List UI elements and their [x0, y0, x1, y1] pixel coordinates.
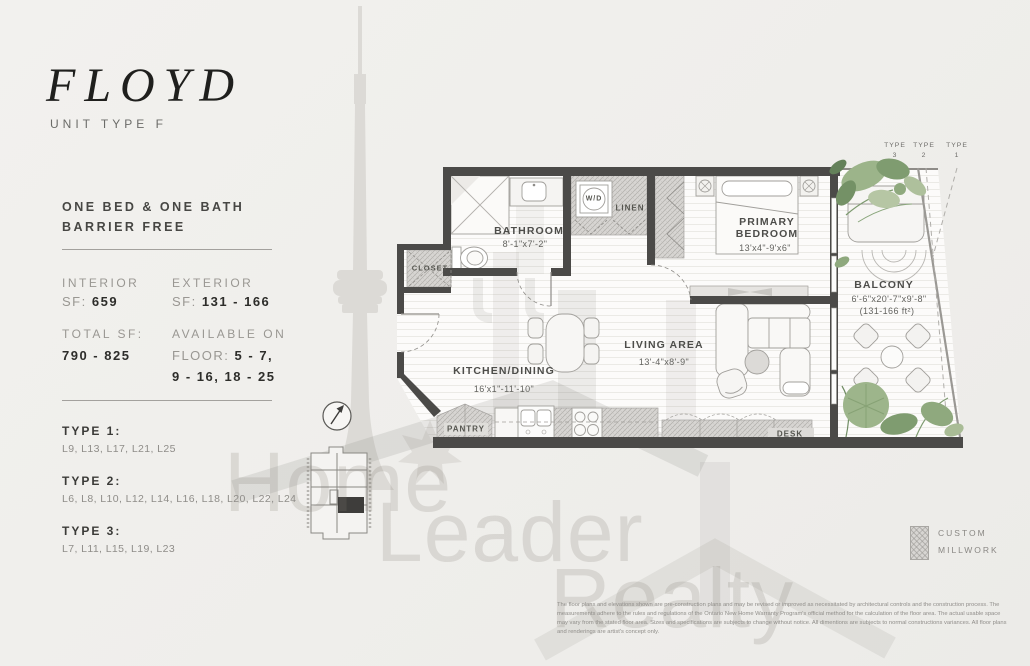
divider — [62, 400, 272, 401]
type-1-levels: L9, L13, L17, L21, L25 — [62, 443, 176, 455]
type-marker-word: TYPE — [946, 141, 968, 151]
type-2-levels: L6, L8, L10, L12, L14, L16, L18, L20, L2… — [62, 493, 296, 505]
total-sf-value: 790 - 825 — [62, 348, 130, 363]
type-marker-word: TYPE — [913, 141, 935, 151]
exterior-label: EXTERIOR — [172, 276, 253, 290]
primary-bedroom-label-1: PRIMARY — [739, 216, 795, 228]
washer-dryer-label: W/D — [586, 196, 603, 203]
disclaimer-text: The floor plans and elevations shown are… — [557, 601, 1009, 637]
type-marker-3: TYPE 3 — [884, 141, 906, 161]
balcony-area: (131-166 ft²) — [860, 306, 915, 316]
interior-value: SF: 659 — [62, 294, 118, 309]
type-marker-1: TYPE 1 — [946, 141, 968, 161]
unit-title: FLOYD — [46, 58, 243, 113]
sf-prefix: SF: — [172, 294, 197, 309]
feature-line-2: BARRIER FREE — [62, 220, 186, 234]
closet-label: CLOSET — [412, 264, 448, 273]
exterior-sf: 131 - 166 — [202, 294, 270, 309]
custom-millwork-swatch — [910, 526, 929, 560]
living-area-label: LIVING AREA — [624, 339, 703, 351]
key-plan-unit-highlight — [338, 497, 364, 513]
floor-line-2: 9 - 16, 18 - 25 — [172, 369, 275, 384]
bathroom-label: BATHROOM — [494, 225, 564, 237]
legend-line-1: CUSTOM — [938, 525, 999, 542]
type-1-label: TYPE 1: — [62, 424, 121, 438]
kitchen-dims: 16'x1"-11'-10" — [474, 384, 534, 394]
total-sf-label: TOTAL SF: — [62, 327, 144, 341]
available-on-label: AVAILABLE ON — [172, 327, 286, 341]
floor-line-1: FLOOR: 5 - 7, — [172, 348, 273, 363]
type-marker-number: 3 — [884, 151, 906, 161]
balcony-label: BALCONY — [854, 279, 914, 291]
custom-millwork-legend: CUSTOM MILLWORK — [938, 525, 999, 559]
type-marker-number: 1 — [946, 151, 968, 161]
primary-bedroom-dims: 13'x4"-9'x6" — [739, 243, 791, 253]
divider — [62, 249, 272, 250]
north-arrow-icon — [323, 402, 351, 430]
unit-subtitle: UNIT TYPE F — [50, 117, 167, 131]
sf-prefix: SF: — [62, 294, 87, 309]
type-marker-word: TYPE — [884, 141, 906, 151]
balcony-dims: 6'-6"x20'-7"x9'-8" — [852, 294, 927, 304]
linen-label: LINEN — [616, 204, 645, 213]
type-marker-number: 2 — [913, 151, 935, 161]
type-2-label: TYPE 2: — [62, 474, 121, 488]
floor-range-1: 5 - 7, — [235, 348, 274, 363]
living-area-dims: 13'-4"x8'-9" — [639, 357, 689, 367]
interior-label: INTERIOR — [62, 276, 139, 290]
legend-line-2: MILLWORK — [938, 542, 999, 559]
feature-line-1: ONE BED & ONE BATH — [62, 200, 244, 214]
primary-bedroom-label-2: BEDROOM — [736, 228, 799, 240]
exterior-value: SF: 131 - 166 — [172, 294, 270, 309]
type-3-label: TYPE 3: — [62, 524, 121, 538]
kitchen-label: KITCHEN/DINING — [453, 365, 555, 377]
floorplan-page: Home Leader Realty FLOYD UNIT TYPE F ONE… — [0, 0, 1030, 666]
type-3-levels: L7, L11, L15, L19, L23 — [62, 543, 175, 555]
key-plan — [308, 447, 370, 539]
bathroom-dims: 8'-1"x7'-2" — [503, 239, 548, 249]
type-marker-2: TYPE 2 — [913, 141, 935, 161]
floor-prefix: FLOOR: — [172, 348, 229, 363]
pantry-label: PANTRY — [447, 425, 485, 434]
interior-sf: 659 — [92, 294, 118, 309]
desk-label: DESK — [777, 430, 803, 439]
